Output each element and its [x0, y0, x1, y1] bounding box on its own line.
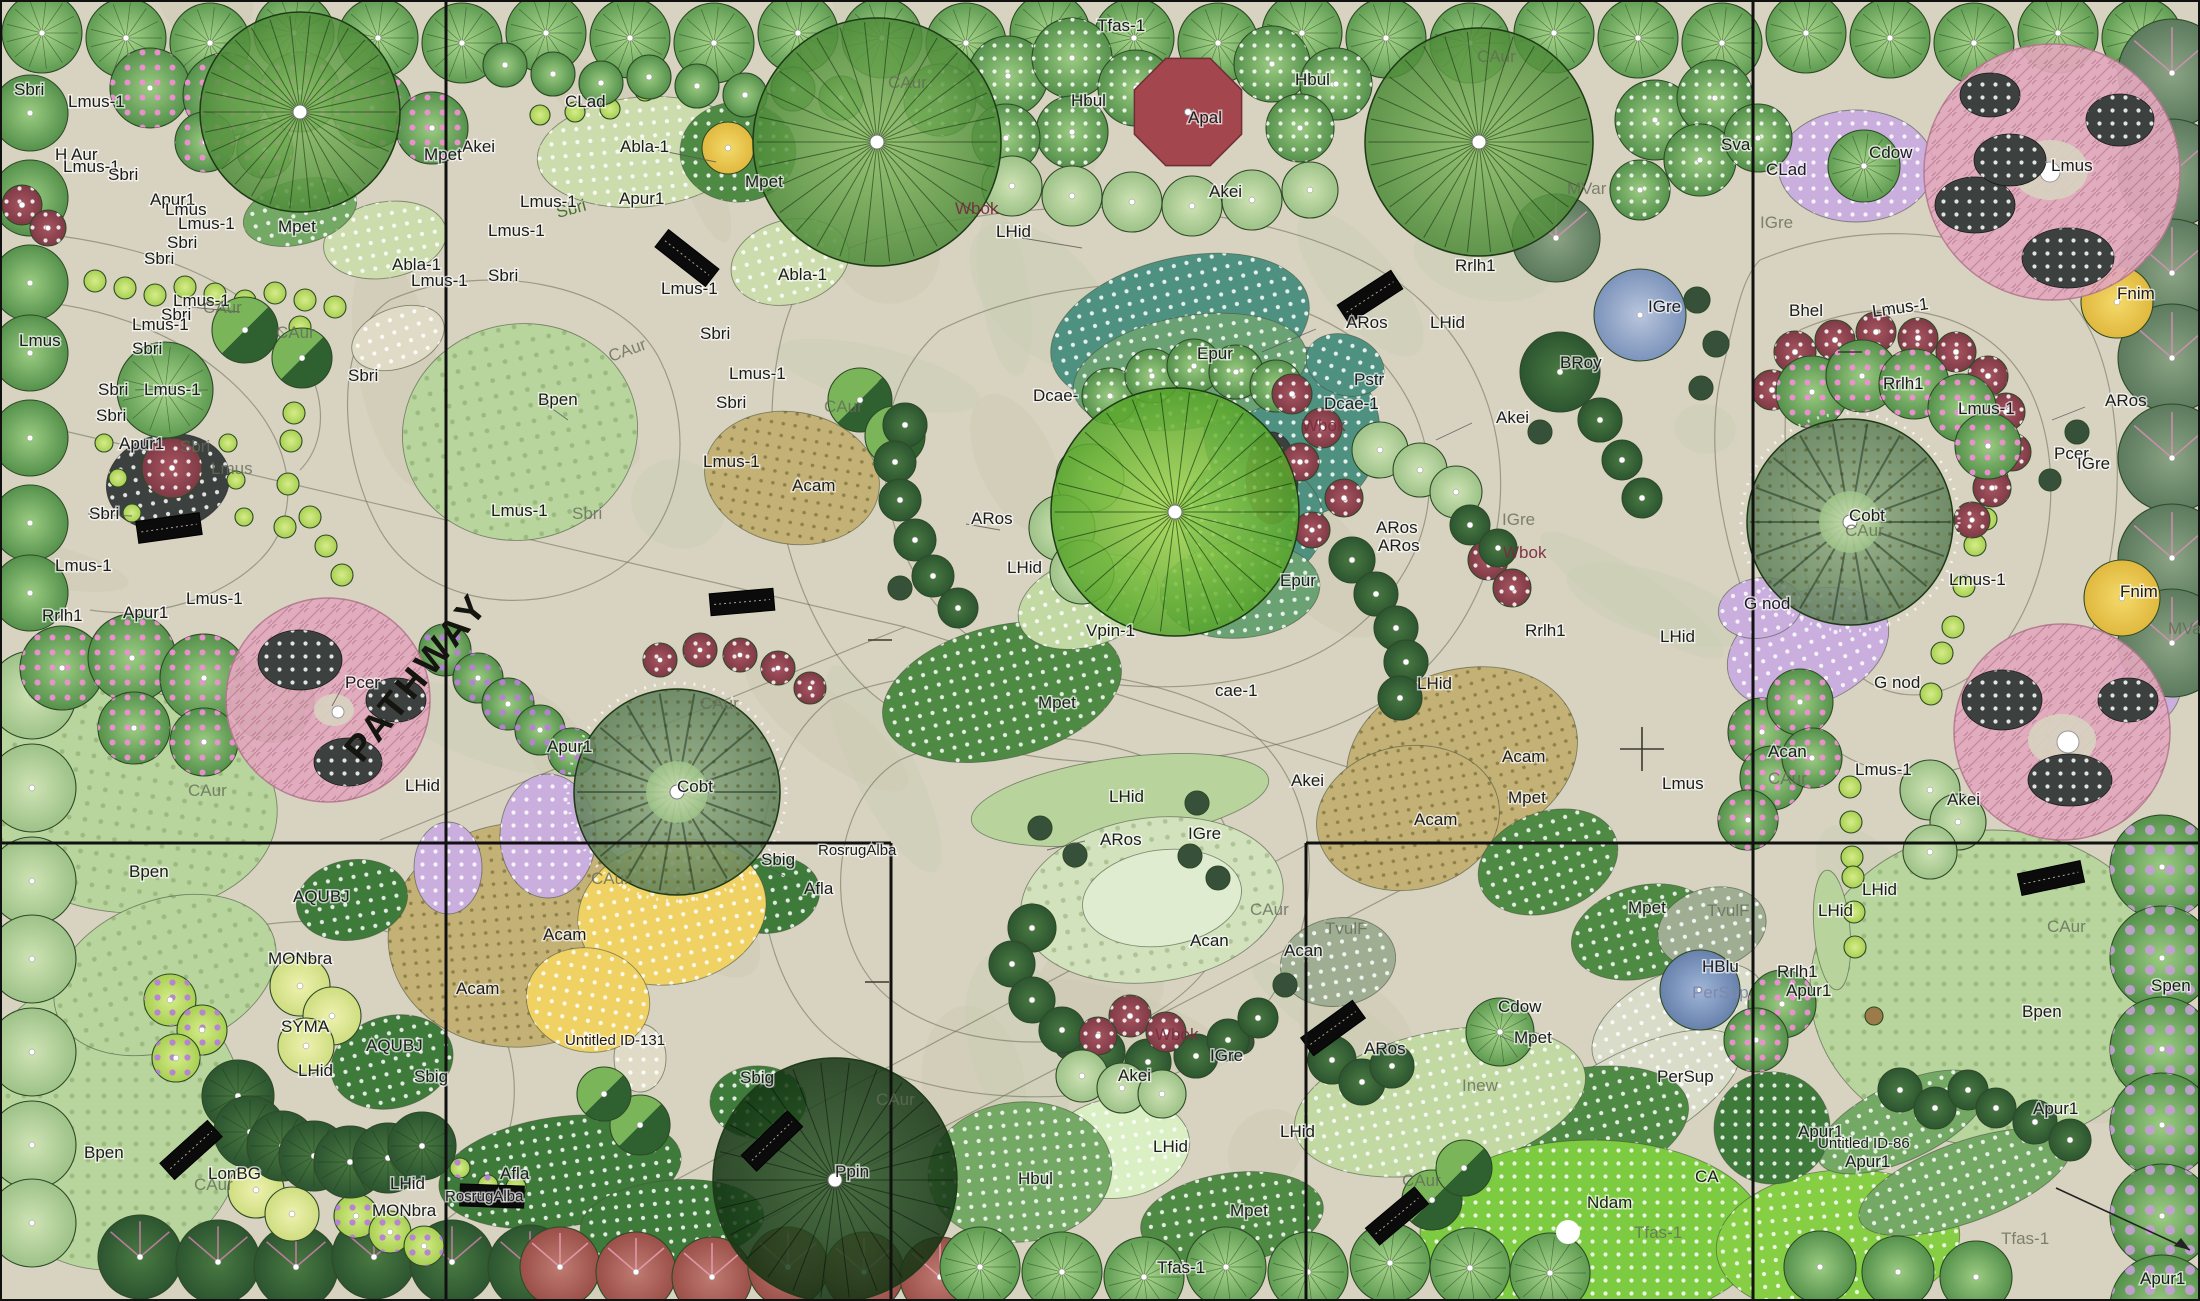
- plant-label[interactable]: Akei: [1118, 1066, 1151, 1085]
- plant-symbol-lime[interactable]: [1841, 846, 1863, 868]
- plant-label[interactable]: CAur: [1845, 521, 1884, 540]
- plant-symbol-maroon[interactable]: [30, 210, 66, 246]
- plant-label[interactable]: IGre: [1502, 510, 1535, 529]
- plant-symbol-lime[interactable]: [283, 402, 305, 424]
- plant-label[interactable]: Bpen: [129, 862, 169, 881]
- charcoal-patch: [258, 630, 342, 690]
- plant-label[interactable]: Rrlh1: [1777, 962, 1818, 981]
- plant-label[interactable]: Lmus-1: [186, 589, 243, 608]
- plant-symbol-lime[interactable]: [331, 564, 353, 586]
- plant-symbol-pinkdot[interactable]: [98, 692, 170, 764]
- plant-label[interactable]: Hbul: [1071, 91, 1106, 110]
- plant-symbol-lime[interactable]: [315, 535, 337, 557]
- canopy-tree-pstr[interactable]: [200, 12, 400, 212]
- plant-symbol-lime[interactable]: [109, 469, 127, 487]
- plant-label[interactable]: Lmus-1: [1958, 399, 2015, 418]
- plant-symbol-maroon[interactable]: [1493, 569, 1531, 607]
- plant-label[interactable]: LHid: [1153, 1137, 1188, 1156]
- plant-symbol-pale[interactable]: [265, 1187, 319, 1241]
- plant-label[interactable]: Ndam: [1587, 1193, 1632, 1212]
- plant-label[interactable]: Lmus: [2051, 156, 2093, 175]
- plant-label[interactable]: Apur1: [119, 434, 164, 453]
- ndam-center-dot: [1556, 1220, 1580, 1244]
- plant-label[interactable]: Lmus-1: [55, 556, 112, 575]
- plant-label[interactable]: Cdow: [1869, 143, 1913, 162]
- plant-label[interactable]: Apur1: [2140, 1269, 2185, 1288]
- plant-label[interactable]: CAur: [876, 1090, 915, 1109]
- plant-label[interactable]: Sbri: [572, 504, 602, 523]
- plant-label[interactable]: Wbok: [1155, 1025, 1199, 1044]
- plant-symbol-dark[interactable]: [1238, 998, 1278, 1038]
- plant-label[interactable]: Spen: [2151, 976, 2191, 995]
- plant-symbol-sprig[interactable]: [2039, 469, 2061, 491]
- plant-label[interactable]: cae-1: [1215, 681, 1258, 700]
- plant-symbol-dark[interactable]: [879, 479, 921, 521]
- plant-label[interactable]: Apur1: [1786, 981, 1831, 1000]
- plant-label[interactable]: Apur1: [123, 603, 168, 622]
- plant-label[interactable]: LHid: [1660, 627, 1695, 646]
- plant-symbol-lime[interactable]: [274, 516, 296, 538]
- plant-label[interactable]: Acam: [456, 979, 499, 998]
- plant-label[interactable]: Apur1: [2033, 1099, 2078, 1118]
- plant-label[interactable]: Ppin: [835, 1162, 869, 1181]
- plant-label[interactable]: Sbri: [180, 437, 210, 456]
- plant-label[interactable]: Acan: [1768, 742, 1807, 761]
- plant-label[interactable]: Bhel: [1789, 301, 1823, 320]
- charcoal-patch: [1974, 134, 2046, 186]
- plant-label[interactable]: IGre: [1760, 213, 1793, 232]
- plant-label[interactable]: Inew: [1462, 1076, 1499, 1095]
- plant-symbol-maroon[interactable]: [683, 633, 717, 667]
- plant-symbol-sprig[interactable]: [1689, 376, 1713, 400]
- plant-label[interactable]: Acam: [1502, 747, 1545, 766]
- plant-label[interactable]: Mpet: [1038, 693, 1076, 712]
- plant-label[interactable]: Lmus-1: [520, 192, 577, 211]
- plant-symbol-sprig[interactable]: [1028, 816, 1052, 840]
- plant-label[interactable]: Mpet: [424, 145, 462, 164]
- plant-symbol-lime[interactable]: [294, 289, 316, 311]
- plant-label[interactable]: Lmus-1: [661, 279, 718, 298]
- plant-symbol-lime[interactable]: [299, 506, 321, 528]
- plant-label[interactable]: CAur: [824, 397, 863, 416]
- plant-label[interactable]: Cobt: [677, 777, 713, 796]
- plant-symbol-lime[interactable]: [1844, 936, 1866, 958]
- plant-symbol-tfas[interactable]: [2, 0, 82, 73]
- charcoal-patch: [1962, 670, 2042, 730]
- plant-symbol-sprig[interactable]: [1178, 844, 1202, 868]
- plant-label[interactable]: Acan: [1284, 941, 1323, 960]
- plant-symbol-hbul[interactable]: [1266, 94, 1334, 162]
- plant-label[interactable]: Sbri: [96, 406, 126, 425]
- plant-label[interactable]: ARos: [1346, 313, 1388, 332]
- plant-label[interactable]: Sbri: [716, 393, 746, 412]
- flower-tree[interactable]: [1954, 624, 2170, 840]
- plant-symbol-dark[interactable]: [1378, 676, 1422, 720]
- plant-symbol-maroon[interactable]: [1325, 479, 1363, 517]
- plant-label[interactable]: Akei: [1209, 182, 1242, 201]
- plant-symbol-lime[interactable]: [264, 282, 286, 304]
- plant-symbol-lime[interactable]: [1842, 866, 1864, 888]
- plant-symbol-sprig[interactable]: [1206, 866, 1230, 890]
- plant-label[interactable]: CAur: [1477, 47, 1516, 66]
- plant-label[interactable]: Lmus-1: [1949, 570, 2006, 589]
- canopy-tree-pstr[interactable]: [753, 18, 1001, 266]
- plant-label[interactable]: Tfas-1: [1634, 1223, 1682, 1242]
- planting-plan-drawing: SbriLmus-1H AurLmus-1SbriApur1LmusLmus-1…: [0, 0, 2200, 1301]
- plant-symbol-lime[interactable]: [219, 434, 237, 452]
- plant-label[interactable]: Sbri: [488, 266, 518, 285]
- plant-symbol-sprig[interactable]: [1185, 791, 1209, 815]
- plant-label[interactable]: Epur: [1197, 344, 1233, 363]
- plant-symbol-med[interactable]: [627, 55, 671, 99]
- plant-symbol-sprig[interactable]: [2065, 420, 2089, 444]
- plant-label[interactable]: Mpet: [1514, 1028, 1552, 1047]
- plant-symbol-med[interactable]: [0, 245, 68, 321]
- plant-label[interactable]: IGre: [2077, 454, 2110, 473]
- charcoal-patch: [2086, 94, 2154, 146]
- plant-label[interactable]: Lmus-1: [411, 271, 468, 290]
- plant-symbol-pinkdot[interactable]: [1767, 669, 1833, 735]
- plant-label[interactable]: G nod: [1874, 673, 1920, 692]
- plant-symbol-dark[interactable]: [938, 588, 978, 628]
- plant-label[interactable]: CAur: [591, 869, 630, 888]
- plant-symbol-lime[interactable]: [530, 105, 550, 125]
- plant-symbol-maroon[interactable]: [1272, 374, 1312, 414]
- plant-symbol-med[interactable]: [531, 52, 575, 96]
- plant-label[interactable]: Sva: [1721, 135, 1751, 154]
- plant-label[interactable]: Apal: [1188, 108, 1222, 127]
- plant-label[interactable]: Rrlh1: [1455, 256, 1496, 275]
- plant-label[interactable]: Lmus-1: [1855, 760, 1912, 779]
- plant-label[interactable]: Akei: [1291, 771, 1324, 790]
- plant-label[interactable]: Sbri: [89, 504, 119, 523]
- plant-label[interactable]: RosrugAlba: [818, 842, 897, 859]
- plant-label[interactable]: Afla: [500, 1164, 530, 1183]
- plant-symbol-lime[interactable]: [280, 430, 302, 452]
- plant-label[interactable]: Mpet: [745, 172, 783, 191]
- plant-symbol-dark[interactable]: [2049, 1119, 2091, 1161]
- plant-label[interactable]: Apur1: [619, 189, 664, 208]
- plant-symbol-sprig[interactable]: [1273, 973, 1297, 997]
- plant-symbol-med[interactable]: [1862, 1236, 1934, 1301]
- plant-symbol-light[interactable]: [1282, 162, 1338, 218]
- plant-label[interactable]: Lmus-1: [68, 92, 125, 111]
- plant-symbol-med[interactable]: [483, 43, 527, 87]
- plant-symbol-mon[interactable]: [152, 1034, 200, 1082]
- plant-symbol-yell[interactable]: [702, 122, 754, 174]
- plant-symbol-med[interactable]: [0, 315, 68, 391]
- plant-label[interactable]: Sbri: [700, 324, 730, 343]
- plant-symbol-maroon[interactable]: [1079, 1017, 1117, 1055]
- plant-label[interactable]: Sbri: [348, 366, 378, 385]
- plant-label[interactable]: Acan: [1190, 931, 1229, 950]
- plant-symbol-lime[interactable]: [1920, 683, 1942, 705]
- plant-label[interactable]: Wbok: [1302, 416, 1346, 435]
- plant-label[interactable]: Bpen: [538, 390, 578, 409]
- plant-label[interactable]: AQUBJ: [366, 1036, 423, 1055]
- plant-symbol-darkpink[interactable]: [98, 1215, 182, 1299]
- plant-symbol-lime[interactable]: [1839, 776, 1861, 798]
- planting-plan-canvas: SbriLmus-1H AurLmus-1SbriApur1LmusLmus-1…: [0, 0, 2200, 1301]
- plant-label[interactable]: TvulF: [1707, 901, 1750, 920]
- plant-label[interactable]: Akei: [1496, 408, 1529, 427]
- plant-label[interactable]: Epur: [1280, 571, 1316, 590]
- plant-label[interactable]: Sbig: [740, 1068, 774, 1087]
- plant-symbol-dark[interactable]: [874, 441, 916, 483]
- plant-label[interactable]: CAur: [276, 323, 315, 342]
- plant-label[interactable]: CAur: [188, 781, 227, 800]
- plant-symbol-lime[interactable]: [1840, 811, 1862, 833]
- plant-label[interactable]: Apur1: [547, 737, 592, 756]
- plant-label[interactable]: Mpet: [1628, 898, 1666, 917]
- plant-label[interactable]: PerSup: [1692, 983, 1749, 1002]
- plant-symbol-dark[interactable]: [1622, 478, 1662, 518]
- plant-symbol-light[interactable]: [1102, 172, 1162, 232]
- plant-symbol-med[interactable]: [1784, 1231, 1856, 1301]
- plant-label[interactable]: Untitled ID-86: [1818, 1135, 1910, 1152]
- plant-label[interactable]: CAur: [2047, 917, 2086, 936]
- plant-symbol-med[interactable]: [0, 400, 68, 476]
- plant-symbol-pinkdot[interactable]: [1955, 413, 2021, 479]
- plant-label[interactable]: Mpet: [1230, 1201, 1268, 1220]
- plant-symbol-caur[interactable]: [1436, 1140, 1492, 1196]
- plant-label[interactable]: Wbok: [1503, 543, 1547, 562]
- plant-label[interactable]: IGre: [1210, 1046, 1243, 1065]
- plant-symbol-tfas[interactable]: [940, 1227, 1020, 1301]
- plant-symbol-dark[interactable]: [883, 403, 927, 447]
- plant-label[interactable]: LHid: [1280, 1122, 1315, 1141]
- plant-symbol-hbul[interactable]: [1610, 160, 1670, 220]
- plant-label[interactable]: CAur: [700, 694, 739, 713]
- plant-symbol-lime[interactable]: [144, 284, 166, 306]
- plant-label[interactable]: Mpet: [278, 217, 316, 236]
- plant-label[interactable]: CAur: [203, 298, 242, 317]
- plant-symbol-tfas[interactable]: [1430, 1228, 1510, 1301]
- plant-label[interactable]: Acam: [1414, 810, 1457, 829]
- plant-label[interactable]: Sbri: [144, 249, 174, 268]
- plant-label[interactable]: Rrlh1: [42, 606, 83, 625]
- plant-label[interactable]: LHid: [1430, 313, 1465, 332]
- plant-label[interactable]: Mpet: [1508, 788, 1546, 807]
- plant-label[interactable]: Lmus: [1662, 774, 1704, 793]
- plant-label[interactable]: Hbul: [1295, 70, 1330, 89]
- plant-label[interactable]: Lmus: [211, 459, 253, 478]
- plant-label[interactable]: Lmus-1: [488, 221, 545, 240]
- plant-symbol-med[interactable]: [675, 64, 719, 108]
- plant-label[interactable]: CAur: [1250, 900, 1289, 919]
- plant-label[interactable]: Sbri: [98, 380, 128, 399]
- charcoal-patch: [2022, 228, 2114, 288]
- plant-label[interactable]: HBlu: [1702, 957, 1739, 976]
- plant-label[interactable]: ARos: [1376, 518, 1418, 537]
- plant-label[interactable]: Sbri: [14, 80, 44, 99]
- plant-symbol-tfas[interactable]: [1598, 0, 1678, 78]
- plant-symbol-tfas[interactable]: [1850, 0, 1930, 78]
- plant-label[interactable]: Rrlh1: [1883, 374, 1924, 393]
- plant-label[interactable]: Sbri: [132, 339, 162, 358]
- plant-symbol-maroon[interactable]: [794, 672, 826, 704]
- plant-label[interactable]: Acam: [543, 925, 586, 944]
- plant-label[interactable]: CAur: [194, 1175, 233, 1194]
- plant-label[interactable]: Pstr: [1354, 370, 1385, 389]
- plant-label[interactable]: TvulF: [1325, 919, 1368, 938]
- plant-label[interactable]: CAur: [1768, 769, 1807, 788]
- plant-symbol-sprig[interactable]: [1063, 843, 1087, 867]
- plant-symbol-pinkdot[interactable]: [1724, 1008, 1788, 1072]
- plant-label[interactable]: CAur: [1402, 1171, 1441, 1190]
- plant-symbol-sprig[interactable]: [1684, 287, 1710, 313]
- plant-label[interactable]: LHid: [1417, 674, 1452, 693]
- plant-label[interactable]: Abla-1: [620, 137, 669, 156]
- plant-label[interactable]: LHid: [1007, 558, 1042, 577]
- plant-label[interactable]: BRoy: [1560, 353, 1602, 372]
- plant-label[interactable]: Sbig: [414, 1067, 448, 1086]
- plant-label[interactable]: Lmus-1: [132, 315, 189, 334]
- plant-symbol-lime[interactable]: [95, 434, 113, 452]
- plant-symbol-darkpink[interactable]: [176, 1220, 260, 1301]
- charcoal-patch: [1960, 73, 2020, 117]
- plant-label[interactable]: Afla: [804, 879, 834, 898]
- plant-label[interactable]: Lmus-1: [178, 214, 235, 233]
- canopy-tree-bright[interactable]: [1051, 388, 1299, 636]
- plant-symbol-hbul[interactable]: [1234, 26, 1310, 102]
- plant-label[interactable]: Tfas-1: [2001, 1229, 2049, 1248]
- plant-label[interactable]: Vpin-1: [1086, 621, 1135, 640]
- plant-label[interactable]: IGre: [1188, 824, 1221, 843]
- plant-symbol-caur[interactable]: [577, 1067, 631, 1121]
- plant-symbol-sprig[interactable]: [888, 576, 912, 600]
- plant-symbol-dark[interactable]: [1602, 440, 1642, 480]
- plant-label[interactable]: Sbig: [761, 850, 795, 869]
- plant-symbol-sprig[interactable]: [1703, 331, 1729, 357]
- plant-symbol-pinkdot[interactable]: [110, 48, 190, 128]
- plant-label[interactable]: Bpen: [2022, 1002, 2062, 1021]
- plant-label[interactable]: Cdow: [1498, 997, 1542, 1016]
- plant-symbol-maroon[interactable]: [723, 638, 757, 672]
- plant-label[interactable]: G nod: [1744, 594, 1790, 613]
- plant-label[interactable]: Hbul: [1018, 1169, 1053, 1188]
- plant-symbol-tfas[interactable]: [1766, 0, 1846, 73]
- plant-label[interactable]: Lmus: [19, 331, 61, 350]
- plant-symbol-rock[interactable]: [1865, 1007, 1883, 1025]
- plant-label[interactable]: Dcae-1: [1324, 394, 1379, 413]
- plant-label[interactable]: ARos: [971, 509, 1013, 528]
- plant-symbol-sprig[interactable]: [1528, 420, 1552, 444]
- plant-label[interactable]: Apur1: [1845, 1152, 1890, 1171]
- plant-label[interactable]: LHid: [390, 1174, 425, 1193]
- plant-label[interactable]: Abla-1: [778, 265, 827, 284]
- plant-label[interactable]: SYMA: [281, 1017, 330, 1036]
- plant-label[interactable]: CLad: [1766, 160, 1807, 179]
- plant-symbol-redpink[interactable]: [520, 1227, 600, 1301]
- plant-symbol-dark[interactable]: [1976, 1088, 2016, 1128]
- plant-symbol-dark[interactable]: [1039, 1007, 1085, 1053]
- plant-label[interactable]: AQUBJ: [293, 887, 350, 906]
- plant-label[interactable]: Untitled ID-131: [565, 1032, 665, 1049]
- plant-label[interactable]: PerSup: [1657, 1067, 1714, 1086]
- plant-symbol-pinkdot[interactable]: [1718, 790, 1778, 850]
- plant-label[interactable]: LHid: [996, 222, 1031, 241]
- plant-symbol-lime[interactable]: [114, 277, 136, 299]
- plant-symbol-lime[interactable]: [123, 504, 141, 522]
- plant-symbol-tfas[interactable]: [1828, 130, 1900, 202]
- plant-label[interactable]: LHid: [405, 776, 440, 795]
- plant-symbol-dark[interactable]: [1520, 332, 1600, 412]
- plant-symbol-maroon[interactable]: [643, 643, 677, 677]
- plant-label[interactable]: ARos: [1100, 830, 1142, 849]
- plant-symbol-mon[interactable]: [404, 1226, 444, 1266]
- plant-label[interactable]: Fnim: [2117, 284, 2155, 303]
- plant-label[interactable]: Bpen: [84, 1143, 124, 1162]
- plant-label[interactable]: CLad: [565, 92, 606, 111]
- plant-label[interactable]: Pcer: [345, 673, 380, 692]
- plant-label[interactable]: ARos: [1378, 536, 1420, 555]
- plant-label[interactable]: Acam: [792, 476, 835, 495]
- plant-label[interactable]: ARos: [2105, 391, 2147, 410]
- plant-label[interactable]: CAur: [888, 73, 927, 92]
- plant-label[interactable]: Lmus-1: [144, 380, 201, 399]
- plant-symbol-light[interactable]: [1042, 166, 1102, 226]
- plant-label[interactable]: Dcae-: [1033, 386, 1078, 405]
- plant-label[interactable]: ARos: [1364, 1039, 1406, 1058]
- charcoal-patch: [2028, 754, 2112, 806]
- plant-symbol-lime[interactable]: [84, 270, 106, 292]
- plant-label[interactable]: Akei: [1947, 790, 1980, 809]
- plant-label[interactable]: RosrugAlba: [445, 1188, 524, 1205]
- plant-label[interactable]: CA: [1695, 1167, 1719, 1186]
- plant-symbol-dark[interactable]: [1578, 398, 1622, 442]
- plant-label[interactable]: Sbri: [108, 165, 138, 184]
- plant-label[interactable]: Akei: [462, 137, 495, 156]
- plant-label[interactable]: Wbok: [955, 199, 999, 218]
- plant-symbol-lime[interactable]: [324, 296, 346, 318]
- plant-label[interactable]: Tfas-1: [1157, 1258, 1205, 1277]
- plant-label[interactable]: Rrlh1: [1525, 621, 1566, 640]
- plant-label[interactable]: MVar: [1567, 179, 1607, 198]
- plant-symbol-dark[interactable]: [894, 519, 936, 561]
- plant-symbol-lime[interactable]: [235, 508, 253, 526]
- plant-symbol-med[interactable]: [0, 485, 68, 561]
- plant-label[interactable]: MONbra: [372, 1201, 437, 1220]
- plant-label[interactable]: Lmus-1: [729, 364, 786, 383]
- plant-label[interactable]: Tfas-1: [1097, 16, 1145, 35]
- plant-label[interactable]: LHid: [1109, 787, 1144, 806]
- charcoal-patch: [2098, 678, 2158, 722]
- plant-label[interactable]: Fnim: [2120, 582, 2158, 601]
- plant-label[interactable]: LHid: [298, 1061, 333, 1080]
- plant-symbol-maroon[interactable]: [761, 651, 795, 685]
- planting-bed-gnod[interactable]: [414, 822, 482, 914]
- plant-symbol-lime[interactable]: [277, 473, 299, 495]
- plant-label[interactable]: LHid: [1818, 901, 1853, 920]
- plant-symbol-lime[interactable]: [1931, 642, 1953, 664]
- plant-label[interactable]: LHid: [1862, 880, 1897, 899]
- plant-symbol-lime[interactable]: [1942, 616, 1964, 638]
- plant-label[interactable]: IGre: [1648, 297, 1681, 316]
- plant-label[interactable]: MVar: [2168, 619, 2200, 638]
- plant-label[interactable]: MONbra: [268, 949, 333, 968]
- plant-symbol-light[interactable]: [1903, 825, 1957, 879]
- plant-label[interactable]: Lmus-1: [703, 452, 760, 471]
